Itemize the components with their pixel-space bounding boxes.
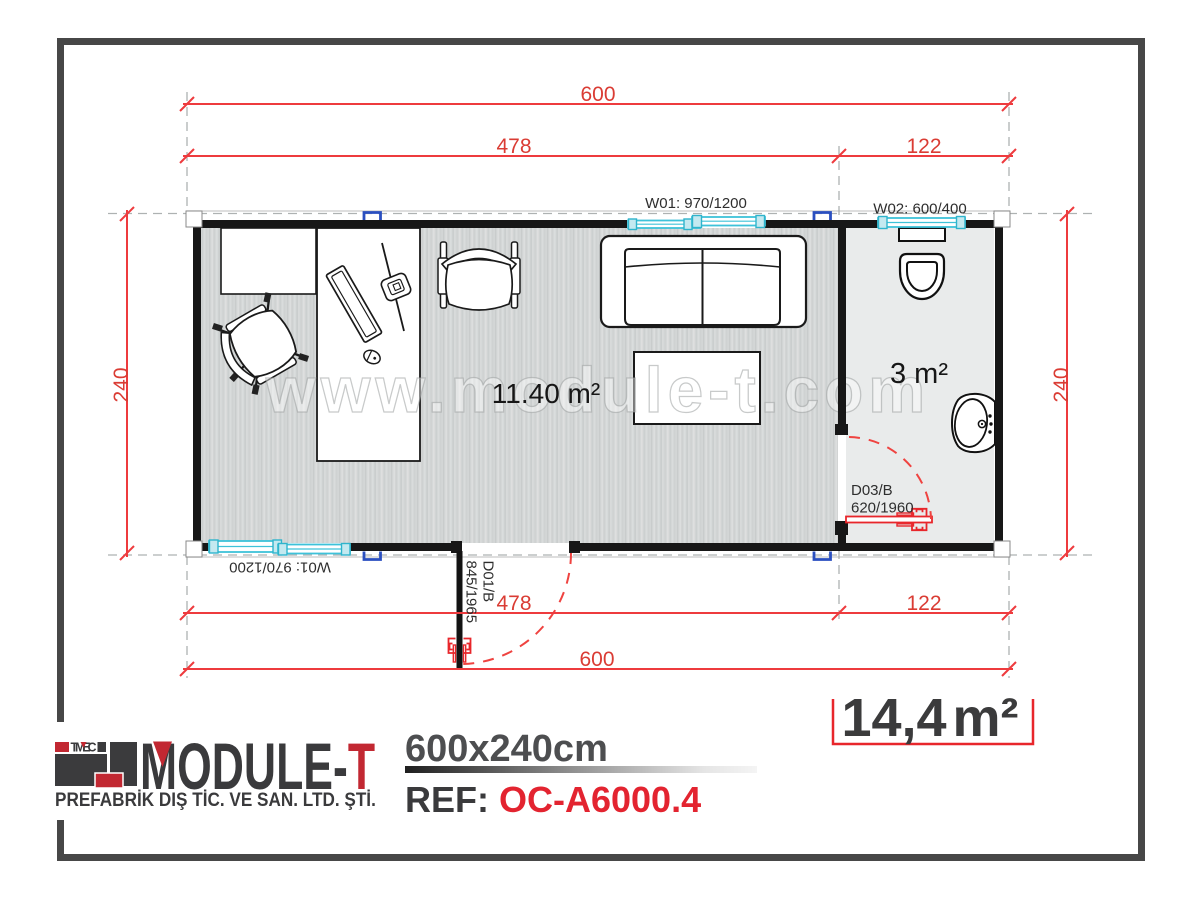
svg-text:600x240cm: 600x240cm [405, 728, 608, 770]
svg-text:W02: 600/400: W02: 600/400 [873, 201, 966, 218]
svg-text:122: 122 [906, 592, 941, 615]
svg-text:3 m²: 3 m² [890, 358, 948, 390]
svg-text:240: 240 [1050, 367, 1073, 402]
svg-text:478: 478 [496, 135, 531, 158]
svg-text:W01: 970/1200: W01: 970/1200 [645, 195, 747, 212]
svg-text:478: 478 [496, 592, 531, 615]
svg-text:D03/B: D03/B [851, 482, 893, 499]
svg-text:PREFABRİK DIŞ TİC. VE SAN. LTD: PREFABRİK DIŞ TİC. VE SAN. LTD. ŞTİ. [55, 788, 376, 810]
svg-text:122: 122 [906, 135, 941, 158]
svg-text:600: 600 [580, 83, 615, 106]
svg-text:W01: 970/1200: W01: 970/1200 [229, 559, 331, 576]
svg-text:600: 600 [579, 648, 614, 671]
svg-text:REF: OC-A6000.4: REF: OC-A6000.4 [405, 779, 701, 820]
svg-text:240: 240 [110, 367, 133, 402]
svg-text:14,4m²: 14,4m² [841, 688, 1018, 748]
svg-text:11.40 m²: 11.40 m² [492, 378, 600, 409]
svg-text:620/1960: 620/1960 [851, 500, 914, 517]
